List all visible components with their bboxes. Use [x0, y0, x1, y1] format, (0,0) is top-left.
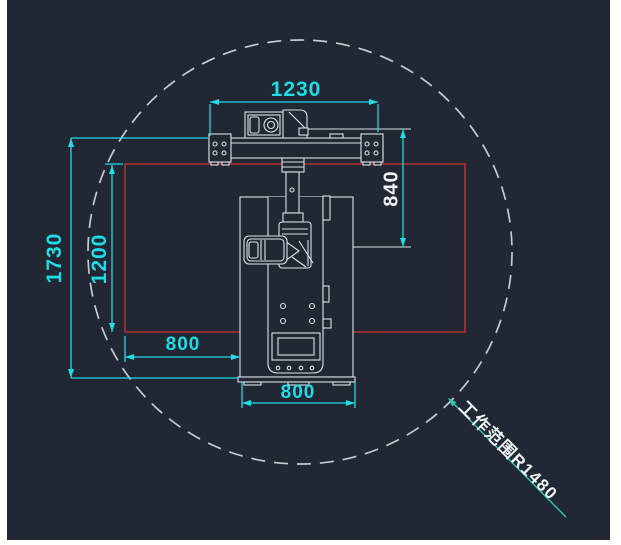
dim-label-800-bottom: 800: [268, 382, 328, 404]
cad-drawing-viewport: 1230 1730 1200 840 800 800 工作范围R1480: [0, 0, 621, 545]
dim-label-800-left: 800: [153, 334, 213, 356]
dim-label-840: 840: [381, 159, 404, 219]
dim-label-1200: 1200: [88, 229, 112, 289]
page-margin-right: [610, 0, 621, 545]
page-margin-bottom: [0, 540, 621, 545]
page-margin-left: [0, 0, 7, 545]
gantry-carriage: [245, 110, 308, 138]
end-effector-gripper: [244, 236, 287, 264]
dim-label-1730: 1730: [43, 228, 67, 288]
dim-label-1230: 1230: [256, 78, 336, 102]
